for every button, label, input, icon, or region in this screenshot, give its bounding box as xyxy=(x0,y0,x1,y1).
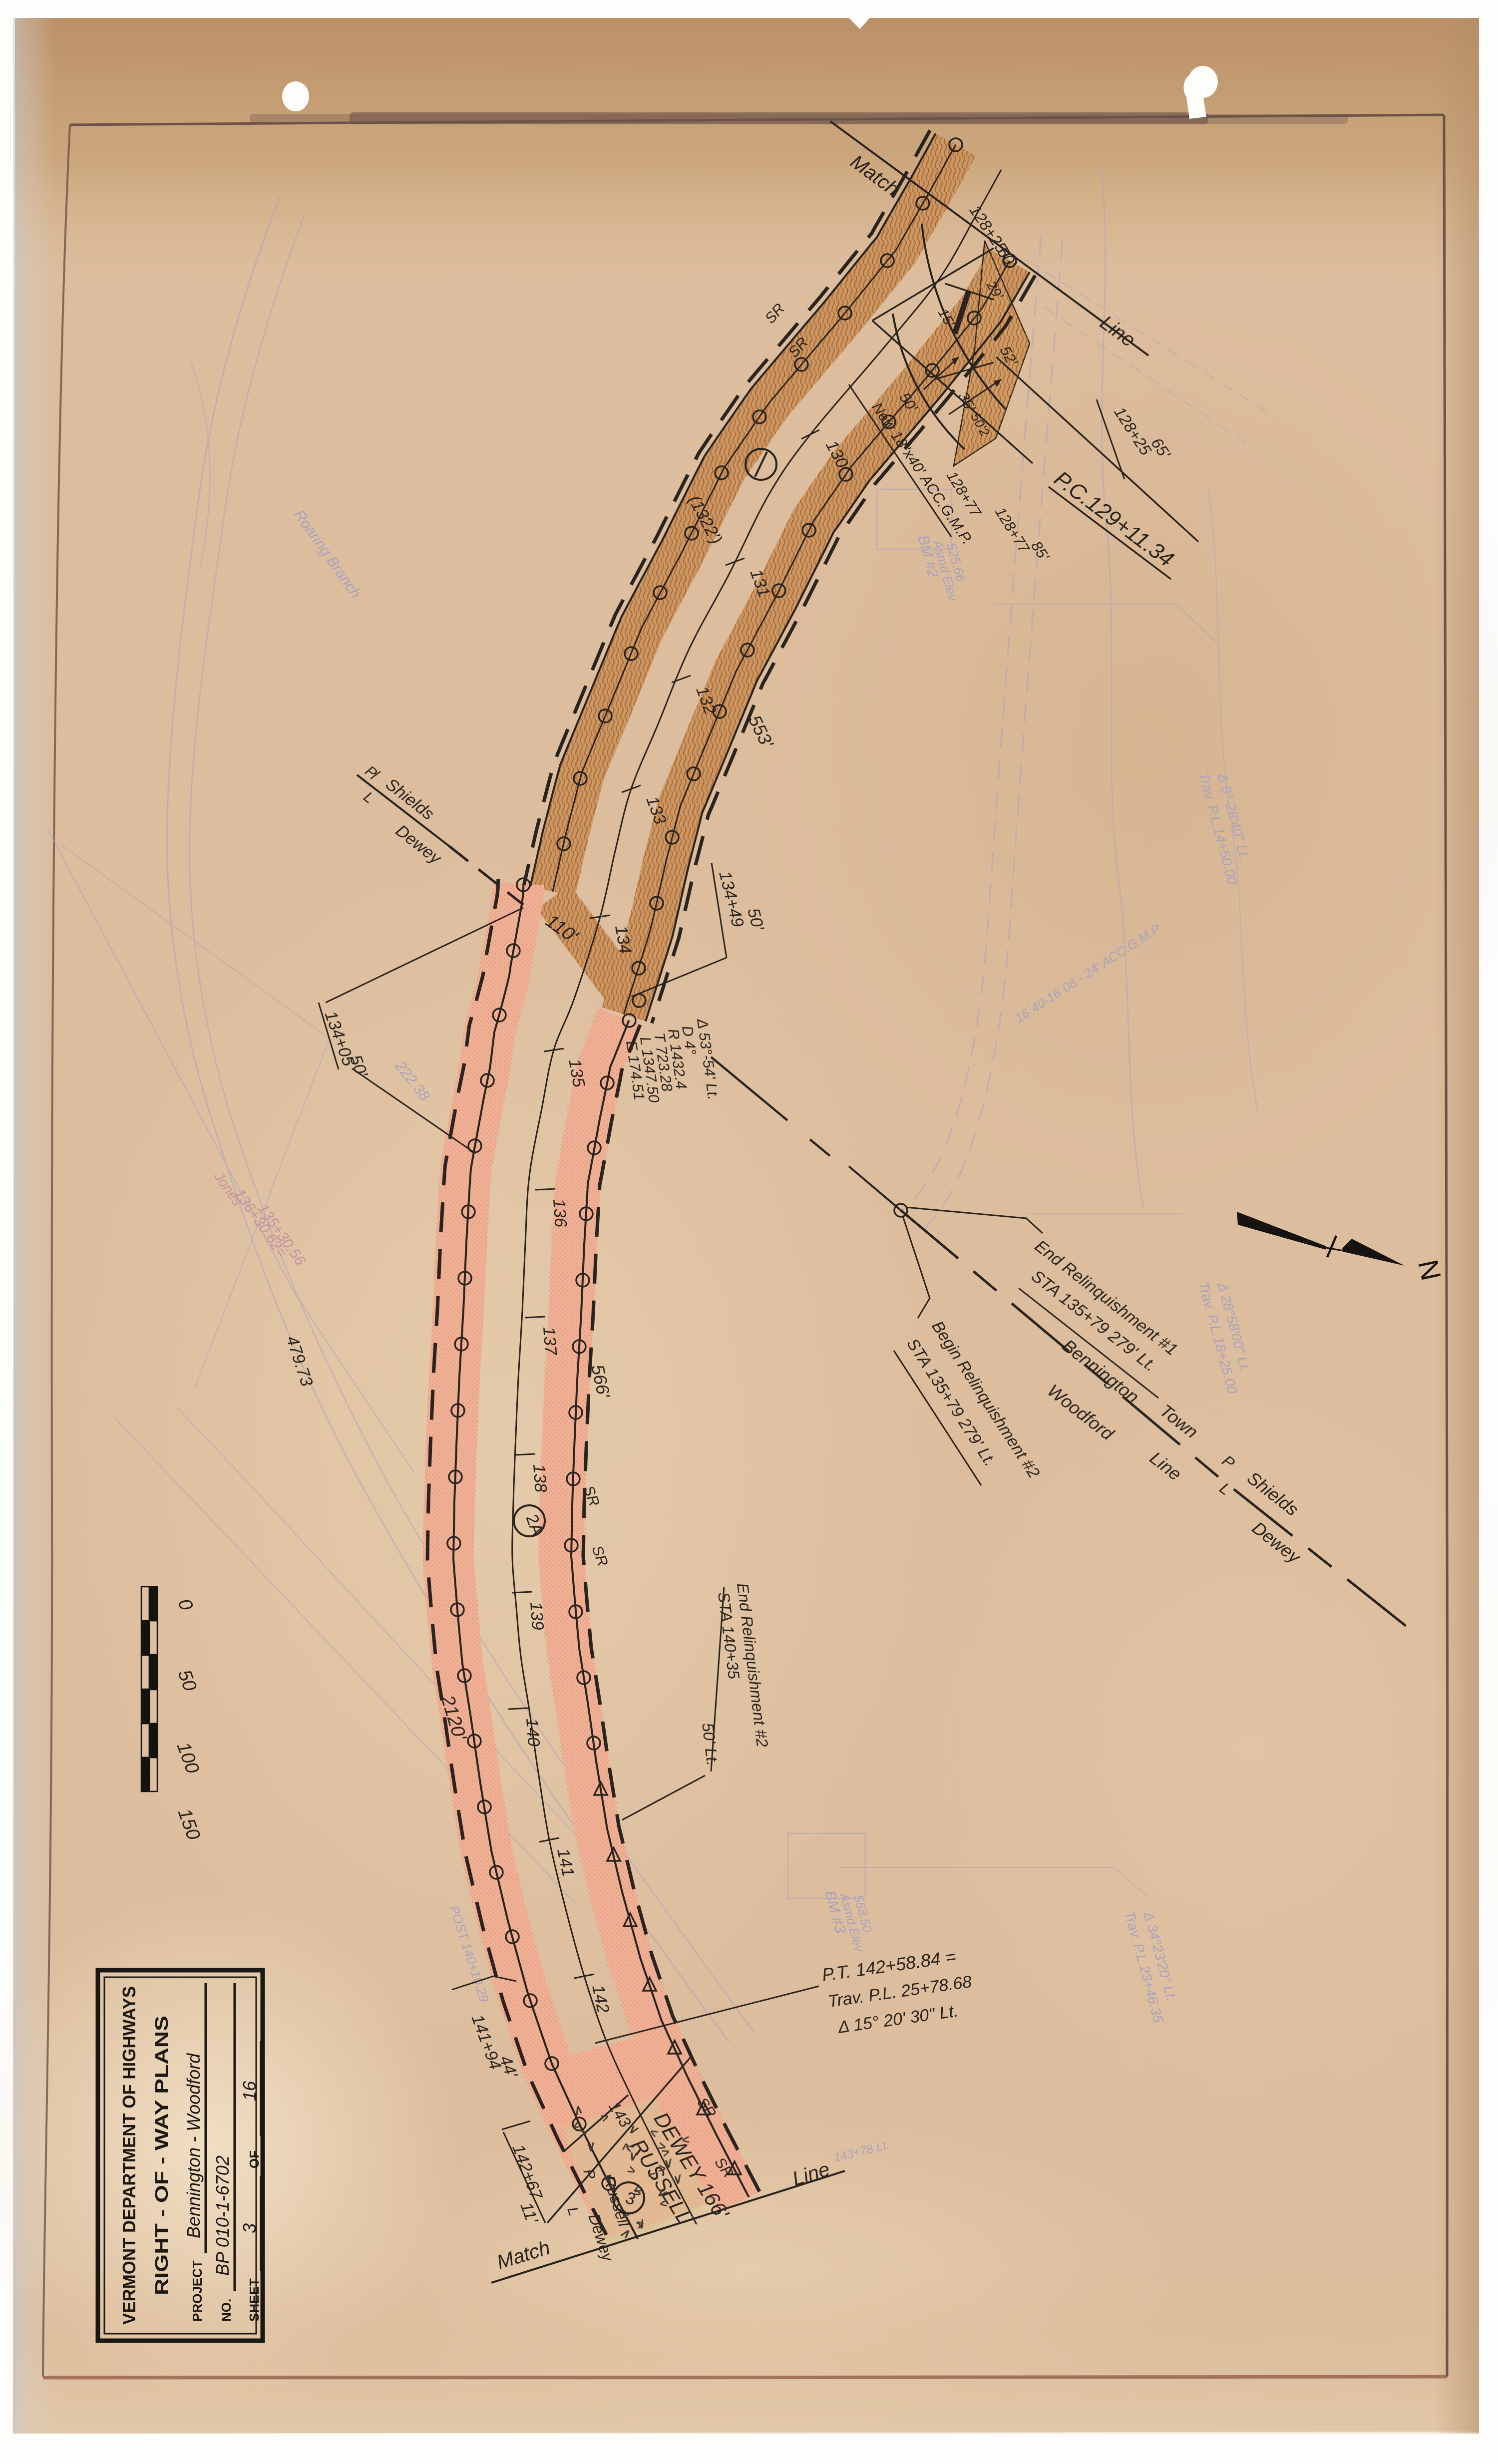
svg-text:<: < xyxy=(603,2169,612,2185)
svg-text:139: 139 xyxy=(526,1601,547,1631)
svg-text:RIGHT - OF - WAY PLANS: RIGHT - OF - WAY PLANS xyxy=(151,2016,172,2295)
svg-text:SHEET: SHEET xyxy=(247,2278,262,2322)
svg-text:PROJECT: PROJECT xyxy=(190,2260,205,2322)
svg-text:136: 136 xyxy=(549,1198,570,1228)
svg-text:3: 3 xyxy=(239,2223,260,2233)
svg-text:<: < xyxy=(681,2132,690,2147)
svg-text:138: 138 xyxy=(529,1463,550,1493)
svg-text:OF: OF xyxy=(247,2150,262,2168)
svg-text:140: 140 xyxy=(522,1718,543,1747)
svg-text:NO.: NO. xyxy=(219,2299,234,2322)
svg-text:BP 010-1-6702: BP 010-1-6702 xyxy=(212,2155,233,2276)
svg-text:137: 137 xyxy=(539,1326,560,1356)
svg-text:Bennington - Woodford: Bennington - Woodford xyxy=(183,2053,204,2238)
svg-text:VERMONT DEPARTMENT OF HIGHWAYS: VERMONT DEPARTMENT OF HIGHWAYS xyxy=(119,1986,139,2325)
svg-text:16: 16 xyxy=(239,2081,260,2101)
